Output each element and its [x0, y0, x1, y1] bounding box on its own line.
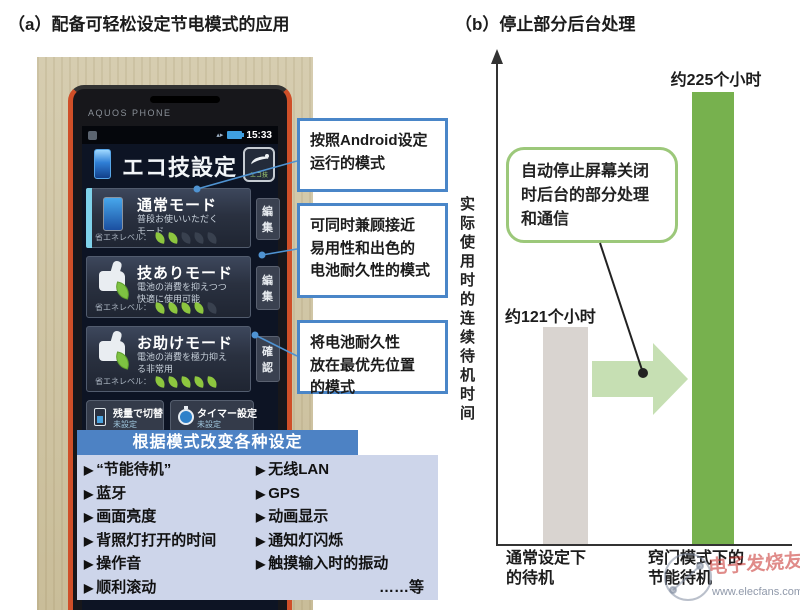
settings-overlay-header: 根据模式改变各种设定	[77, 430, 358, 455]
mode-tile-help[interactable]: お助けモード 電池の消費を極力抑え る非常用 省エネレベル：	[86, 326, 251, 392]
phone-earpiece	[150, 96, 220, 103]
edit-button-wazaari-mode[interactable]: 編集	[256, 266, 280, 310]
leaf-level-icon	[206, 376, 218, 388]
triangle-bullet-icon: ▶	[256, 463, 265, 477]
triangle-bullet-icon: ▶	[84, 510, 93, 524]
timer-setting-button[interactable]: タイマー設定 未設定	[170, 400, 254, 433]
watermark-brand: 电子发烧友	[707, 546, 800, 580]
figure-root: （a）配备可轻松设定节电模式的应用 （b）停止部分后台处理 AQUOS PHON…	[0, 0, 800, 610]
timer-icon	[178, 409, 194, 425]
list-item: ▶“节能待机”	[84, 458, 254, 482]
watermark-url: www.elecfans.com	[712, 586, 800, 598]
leaf-level-icon	[180, 232, 192, 244]
eco-app-title: エコ技設定	[122, 150, 237, 182]
mode-name: お助けモード	[137, 332, 233, 353]
improvement-arrow-icon	[592, 343, 688, 415]
list-item-etc: ……等	[256, 576, 432, 600]
eco-level-row: 省エネレベル：	[95, 232, 217, 243]
leaf-level-icon	[206, 232, 218, 244]
list-item: ▶通知灯闪烁	[256, 529, 432, 553]
status-time: 15:33	[246, 130, 272, 141]
panel-b-title: （b）停止部分后台处理	[455, 10, 635, 35]
bar-eco-standby	[692, 92, 734, 545]
triangle-bullet-icon: ▶	[256, 510, 265, 524]
leaf-level-icon	[180, 376, 192, 388]
leaf-level-icon	[167, 232, 179, 244]
phone-status-bar: ▴▸ 15:33	[82, 126, 278, 144]
eco-level-row: 省エネレベル：	[95, 376, 217, 387]
y-axis-arrowhead-icon	[491, 49, 503, 64]
bubble-pointer-dot	[638, 368, 648, 378]
edit-button-normal-mode[interactable]: 編集	[256, 198, 280, 240]
list-item: ▶画面亮度	[84, 505, 254, 529]
panel-a-title: （a）配备可轻松设定节电模式的应用	[8, 10, 289, 35]
mode-name: 技ありモード	[137, 262, 233, 283]
mode-name: 通常モード	[137, 194, 217, 215]
phone-brand-label: AQUOS PHONE	[88, 108, 172, 118]
list-item: ▶蓝牙	[84, 482, 254, 506]
button-label: タイマー設定	[197, 405, 257, 420]
bar-normal-standby	[543, 327, 588, 545]
settings-overlay-list: ▶“节能待机” ▶蓝牙 ▶画面亮度 ▶背照灯打开的时间 ▶操作音 ▶顺利滚动 ▶…	[77, 455, 438, 600]
mode-description: 電池の消費を極力抑え る非常用	[137, 352, 227, 375]
triangle-bullet-icon: ▶	[256, 557, 265, 571]
leaf-level-icon	[193, 376, 205, 388]
annotation-bubble: 自动停止屏幕关闭 时后台的部分处理 和通信	[506, 147, 678, 243]
bubble-pointer-line	[600, 243, 643, 373]
button-sublabel: 未設定	[113, 419, 137, 430]
status-left-icon	[88, 131, 97, 140]
triangle-bullet-icon: ▶	[84, 463, 93, 477]
list-item: ▶背照灯打开的时间	[84, 529, 254, 553]
triangle-bullet-icon: ▶	[84, 487, 93, 501]
callout-normal-mode: 按照Android设定 运行的模式	[297, 118, 448, 192]
bar-value-label-225h: 约225个小时	[651, 66, 781, 90]
badge-glyph-dot	[265, 154, 269, 158]
switch-by-battery-level-button[interactable]: 残量で切替 未設定	[86, 400, 164, 433]
callout-help-mode: 将电池耐久性 放在最优先位置 的模式	[297, 320, 448, 394]
mode-tile-wazaari[interactable]: 技ありモード 電池の消費を抑えつつ 快適に使用可能 省エネレベル：	[86, 256, 251, 318]
badge-label: エコ技	[245, 170, 273, 179]
list-item: ▶触摸输入时的振动	[256, 552, 432, 576]
signal-icon: ▴▸	[216, 131, 223, 139]
leaf-level-icon	[206, 302, 218, 314]
eco-level-row: 省エネレベル：	[95, 302, 217, 313]
leaf-level-icon	[154, 232, 166, 244]
battery-icon	[94, 149, 111, 179]
list-item: ▶顺利滚动	[84, 576, 254, 600]
callout-wazaari-mode: 可同时兼顾接近 易用性和出色的 电池耐久性的模式	[297, 203, 448, 298]
confirm-button-help-mode[interactable]: 確認	[256, 336, 280, 382]
bar-value-label-121h: 约121个小时	[505, 303, 596, 327]
button-label: 残量で切替	[113, 405, 163, 420]
battery-status-icon	[227, 131, 242, 139]
triangle-bullet-icon: ▶	[84, 534, 93, 548]
list-item: ▶操作音	[84, 552, 254, 576]
leaf-level-icon	[167, 376, 179, 388]
selected-mode-indicator	[86, 188, 92, 248]
leaf-level-icon	[180, 302, 192, 314]
triangle-bullet-icon: ▶	[84, 557, 93, 571]
list-item: ▶动画显示	[256, 505, 432, 529]
leaf-level-icon	[154, 376, 166, 388]
leaf-icon	[113, 351, 131, 369]
triangle-bullet-icon: ▶	[256, 534, 265, 548]
eco-level-label: 省エネレベル：	[95, 232, 151, 243]
battery-switch-icon	[94, 408, 106, 426]
leaf-level-icon	[193, 302, 205, 314]
eco-app-header: エコ技設定 エコ技	[82, 146, 278, 184]
list-item: ▶无线LAN	[256, 458, 432, 482]
list-item: ▶GPS	[256, 482, 432, 506]
phone-mode-icon	[103, 197, 123, 231]
leaf-level-icon	[193, 232, 205, 244]
eco-level-label: 省エネレベル：	[95, 376, 151, 387]
leaf-level-icon	[154, 302, 166, 314]
mode-tile-normal[interactable]: 通常モード 普段お使いいただく モード 省エネレベル：	[86, 188, 251, 248]
button-sublabel: 未設定	[197, 419, 221, 430]
y-axis-label: 实际使用时的连续待机时间	[456, 196, 477, 424]
eco-level-label: 省エネレベル：	[95, 302, 151, 313]
eco-waza-badge-icon[interactable]: エコ技	[243, 147, 275, 182]
leaf-level-icon	[167, 302, 179, 314]
category-label-normal: 通常设定下 的待机	[506, 549, 586, 589]
leaf-icon	[113, 281, 131, 299]
triangle-bullet-icon: ▶	[84, 581, 93, 595]
triangle-bullet-icon: ▶	[256, 487, 265, 501]
